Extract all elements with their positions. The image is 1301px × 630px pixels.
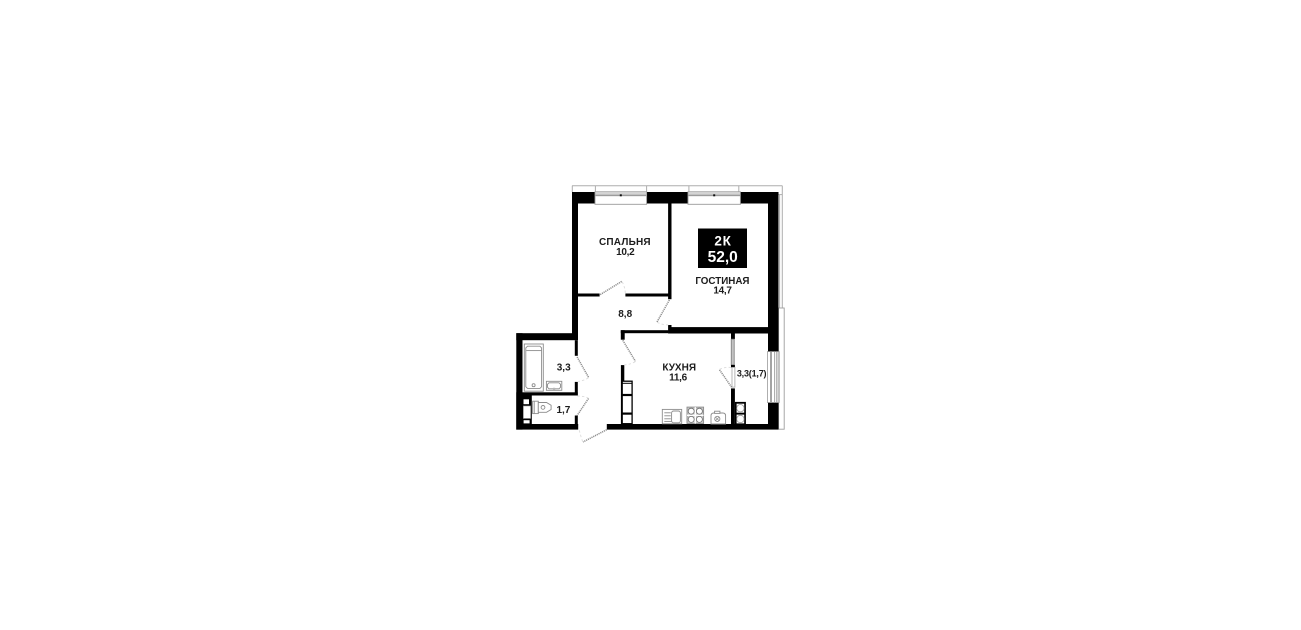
svg-text:8,8: 8,8	[618, 309, 632, 320]
svg-text:52,0: 52,0	[708, 249, 738, 266]
svg-text:14,7: 14,7	[713, 286, 732, 297]
svg-text:1,7: 1,7	[556, 405, 570, 416]
svg-text:3,3: 3,3	[557, 363, 571, 374]
svg-text:3,3(1,7): 3,3(1,7)	[737, 369, 767, 379]
svg-text:11,6: 11,6	[669, 372, 687, 383]
svg-text:10,2: 10,2	[616, 247, 635, 258]
svg-text:2К: 2К	[714, 233, 731, 248]
